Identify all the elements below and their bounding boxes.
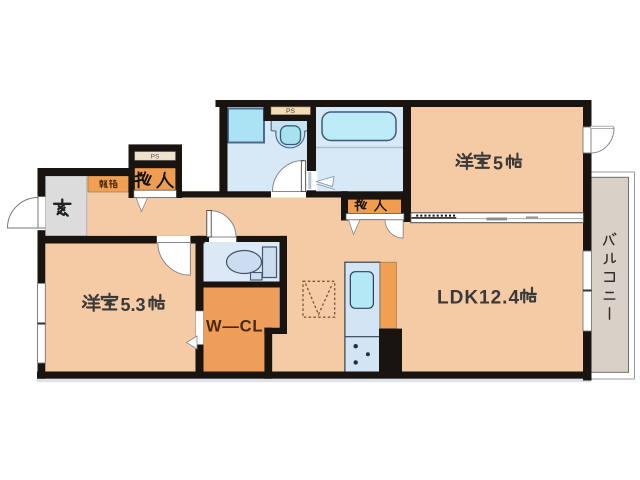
svg-text:W—CL: W—CL (206, 318, 263, 336)
svg-text:5: 5 (493, 153, 503, 173)
svg-text:PS: PS (151, 154, 160, 161)
svg-text:PS: PS (286, 108, 296, 115)
svg-text:5.3: 5.3 (121, 295, 146, 315)
svg-text:LDK12.4: LDK12.4 (437, 288, 520, 309)
